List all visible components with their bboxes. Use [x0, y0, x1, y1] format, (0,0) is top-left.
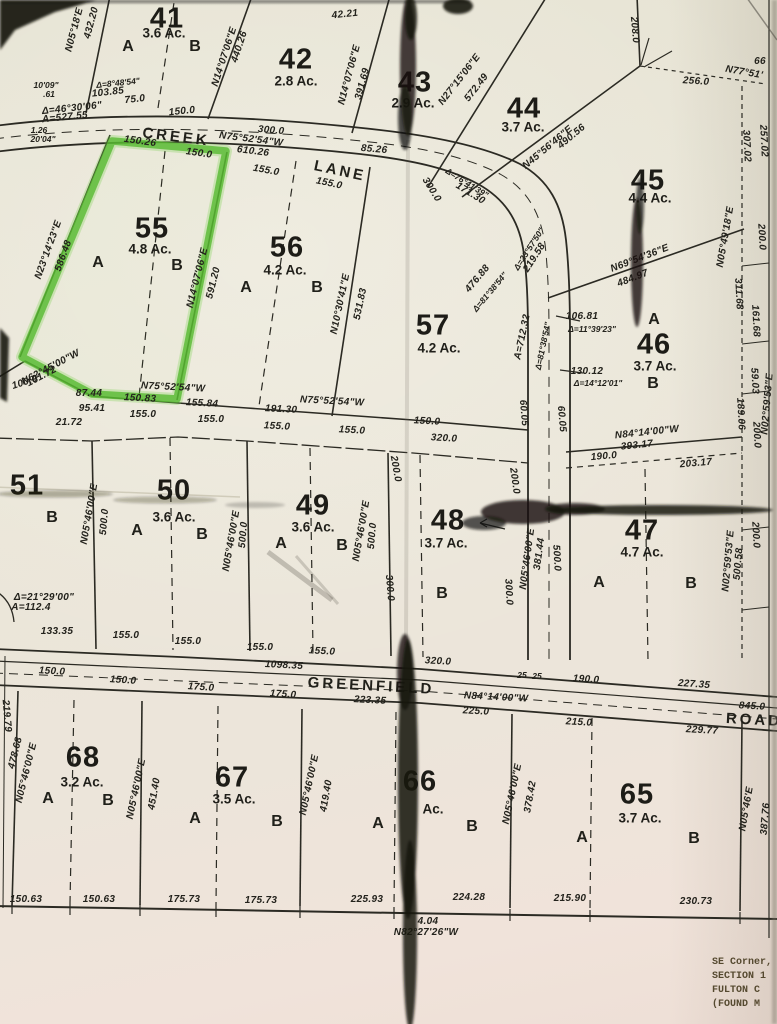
survey-dimension: 200.0: [750, 421, 761, 448]
lot-acreage: 3.6 Ac.: [291, 520, 334, 534]
survey-dimension: 87.44: [76, 389, 103, 399]
survey-dimension: 130.12: [571, 367, 603, 377]
sublot-letter: A: [42, 791, 54, 807]
survey-dimension: 591.20: [205, 266, 223, 300]
lot-acreage: 4.2 Ac.: [417, 341, 460, 355]
lot-acreage: 4.4 Ac.: [628, 191, 671, 205]
survey-dimension: A=712.32: [513, 313, 532, 360]
survey-dimension: 225.93: [351, 895, 383, 905]
survey-dimension: Δ=81°38'54": [534, 321, 552, 370]
survey-dimension: 320.0: [430, 433, 457, 444]
sublot-letter: B: [271, 814, 283, 830]
survey-dimension: 20'04": [31, 135, 56, 144]
survey-dimension: 419.40: [319, 779, 334, 813]
survey-dimension: 155.0: [175, 637, 202, 647]
lot-acreage: 3.7 Ac.: [501, 120, 544, 134]
survey-dimension: 190.0: [572, 674, 599, 686]
survey-dimension: 490.56: [556, 123, 587, 151]
survey-dimension: 66: [754, 57, 766, 67]
lot-number-66: 66: [403, 768, 437, 797]
survey-dimension: Δ=14°12'01": [574, 379, 623, 388]
sublot-letter: A: [593, 575, 605, 591]
survey-dimension: 155.0: [338, 425, 365, 436]
survey-dimension: N14°07'06"E: [186, 247, 211, 309]
sublot-letter: A: [131, 523, 143, 539]
lot-acreage: 4.7 Ac.: [620, 545, 663, 559]
sublot-letter: A: [576, 830, 588, 846]
map-labels-layer: N05°18'E432.20413.6 Ac.ABN14°07'06"E440.…: [0, 0, 777, 1024]
survey-dimension: 175.0: [187, 682, 214, 694]
survey-dimension: 155.0: [130, 410, 157, 420]
lot-number-65: 65: [620, 781, 654, 810]
lot-number-48: 48: [431, 507, 465, 536]
survey-dimension: 175.73: [245, 896, 277, 906]
survey-dimension: N05°46'00"E: [502, 763, 525, 825]
survey-dimension: A=112.4: [11, 603, 50, 613]
sublot-letter: B: [685, 576, 697, 592]
survey-dimension: 190.0: [590, 451, 617, 463]
lot-number-49: 49: [296, 492, 330, 521]
plat-map-photo: N05°18'E432.20413.6 Ac.ABN14°07'06"E440.…: [0, 0, 777, 1024]
survey-dimension: 500.0: [99, 508, 111, 535]
lot-acreage: 3.2 Ac.: [60, 775, 103, 789]
survey-dimension: N02°59'53"E: [760, 373, 775, 435]
road-name-greenfield: GREENFIELD: [307, 675, 434, 697]
lot-acreage: 3.5 Ac.: [212, 792, 255, 806]
lot-number-46: 46: [637, 331, 671, 360]
survey-dimension: 387.76: [760, 802, 773, 835]
lot-number-50: 50: [157, 477, 191, 506]
survey-dimension: N05°46'00"E: [126, 758, 149, 820]
sublot-letter: B: [196, 527, 208, 543]
corner-note-line: SECTION 1: [712, 972, 766, 982]
survey-dimension: 200.0: [388, 455, 402, 483]
survey-dimension: N75°52'54"W: [300, 395, 365, 408]
lot-number-42: 42: [279, 46, 313, 75]
sublot-letter: B: [688, 831, 700, 847]
survey-dimension: 500.0: [550, 544, 561, 571]
survey-dimension: 230.73: [680, 897, 712, 907]
lot-acreage: 2.9 Ac.: [391, 96, 434, 110]
survey-dimension: 531.83: [353, 287, 370, 321]
survey-dimension: 21.72: [56, 418, 83, 428]
survey-dimension: 225.0: [462, 706, 489, 717]
survey-dimension: 229.77: [686, 725, 719, 737]
survey-dimension: 106.81: [566, 312, 598, 322]
sublot-letter: A: [275, 536, 287, 552]
lot-number-56: 56: [270, 234, 304, 263]
survey-dimension: 256.0: [682, 76, 709, 88]
survey-dimension: 155.0: [198, 415, 225, 425]
survey-dimension: 300.0: [502, 578, 513, 605]
survey-dimension: 215.90: [554, 894, 586, 904]
survey-dimension: 175.73: [168, 895, 200, 905]
survey-dimension: 161.68: [749, 305, 761, 338]
survey-dimension: N82°27'26"W: [394, 928, 458, 938]
sublot-letter: A: [92, 255, 104, 271]
survey-dimension: 150.63: [10, 895, 42, 905]
survey-dimension: 610.26: [236, 145, 269, 159]
survey-dimension: 150.0: [413, 416, 440, 427]
survey-dimension: 25: [517, 671, 526, 680]
survey-dimension: 60.05: [517, 399, 529, 426]
survey-dimension: 150.0: [109, 675, 136, 687]
survey-dimension: 432.20: [83, 6, 101, 40]
lot-number-51: 51: [10, 472, 44, 501]
sublot-letter: B: [647, 376, 659, 392]
survey-dimension: 320.0: [424, 656, 451, 667]
survey-dimension: 307.02: [740, 130, 752, 163]
survey-dimension: .61: [43, 90, 55, 99]
sublot-letter: A: [189, 811, 201, 827]
survey-dimension: 150.0: [168, 106, 195, 119]
sublot-letter: A: [372, 816, 384, 832]
sublot-letter: A: [122, 39, 134, 55]
survey-dimension: 150.0: [38, 666, 65, 677]
lot-acreage: 4.8 Ac.: [128, 242, 171, 256]
survey-dimension: N05°18'E: [64, 7, 85, 53]
lot-acreage: 3.7 Ac.: [618, 811, 661, 825]
survey-dimension: 215.0: [565, 717, 592, 728]
corner-note-line: SE Corner,: [712, 958, 772, 968]
lot-number-67: 67: [215, 764, 249, 793]
survey-dimension: 484.97: [616, 269, 650, 290]
survey-dimension: 200.0: [749, 521, 760, 548]
survey-dimension: N84°14'00"W: [464, 691, 529, 704]
survey-dimension: 85.26: [360, 144, 387, 156]
survey-dimension: 25: [532, 672, 541, 681]
sublot-letter: B: [336, 538, 348, 554]
survey-dimension: 155.84: [186, 398, 219, 410]
survey-dimension: Δ=11°39'23": [568, 325, 616, 334]
sublot-letter: A: [648, 312, 660, 328]
survey-dimension: 191.30: [265, 404, 298, 416]
lot-acreage: 4.2 Ac.: [263, 263, 306, 277]
lot-acreage: 3.7 Ac.: [633, 359, 676, 373]
survey-dimension: N10°30'41"E: [330, 273, 353, 335]
survey-dimension: A=527.55: [42, 111, 89, 126]
sublot-letter: B: [436, 586, 448, 602]
survey-dimension: 42.21: [331, 9, 358, 22]
survey-dimension: 208.0: [628, 16, 640, 43]
sublot-letter: B: [102, 793, 114, 809]
survey-dimension: N05°46'E: [738, 786, 756, 832]
survey-dimension: 200.0: [507, 467, 521, 495]
lot-number-68: 68: [66, 744, 100, 773]
survey-dimension: N05°49'18"E: [716, 206, 737, 268]
survey-dimension: 95.41: [79, 404, 106, 414]
sublot-letter: B: [189, 39, 201, 55]
survey-dimension: 60.05: [555, 405, 567, 432]
survey-dimension: 1098.35: [265, 660, 304, 672]
survey-dimension: 59.03: [748, 367, 759, 394]
survey-dimension: 4.04: [418, 917, 439, 927]
survey-dimension: 155.0: [263, 421, 290, 432]
survey-dimension: 223.35: [354, 695, 387, 707]
sublot-letter: B: [311, 280, 323, 296]
survey-dimension: 300.0: [383, 574, 395, 601]
survey-dimension: N05°46'00"E: [80, 483, 101, 545]
sublot-letter: A: [240, 280, 252, 296]
survey-dimension: 257.02: [757, 125, 769, 158]
survey-dimension: 150.0: [185, 147, 213, 161]
lot-number-43: 43: [398, 69, 432, 98]
survey-dimension: 203.17: [679, 458, 712, 471]
survey-dimension: 381.44: [533, 537, 547, 570]
road-name-road: ROAD: [726, 711, 777, 729]
survey-dimension: 155.0: [308, 646, 335, 657]
sublot-letter: B: [171, 258, 183, 274]
lot-acreage: 2.8 Ac.: [274, 74, 317, 88]
corner-note-line: FULTON C: [712, 986, 760, 996]
corner-note-line: (FOUND M: [712, 1000, 760, 1010]
survey-dimension: 500.58: [733, 547, 746, 580]
survey-dimension: 224.28: [453, 893, 485, 903]
survey-dimension: 103.85: [91, 86, 124, 99]
lot-number-57: 57: [416, 312, 450, 341]
survey-dimension: N77°51': [724, 65, 763, 81]
survey-dimension: 75.0: [124, 94, 146, 106]
survey-dimension: 155.0: [252, 164, 280, 178]
survey-dimension: 393.17: [620, 439, 653, 452]
survey-dimension: 586.48: [54, 239, 74, 273]
lot-number-55: 55: [135, 215, 169, 244]
survey-dimension: 300.0: [420, 176, 443, 204]
survey-dimension: 100.0: [11, 374, 39, 392]
survey-dimension: 227.35: [677, 679, 710, 691]
survey-dimension: 155.0: [113, 631, 140, 641]
survey-dimension: 451.40: [147, 777, 162, 811]
survey-dimension: 155.0: [247, 643, 274, 653]
survey-dimension: 311.68: [732, 278, 744, 310]
survey-dimension: 133.35: [41, 627, 73, 637]
survey-dimension: 500.0: [238, 521, 250, 548]
lot-acreage: 3.6 Ac.: [142, 26, 185, 40]
survey-dimension: 200.0: [755, 223, 766, 250]
survey-dimension: 189.06: [734, 398, 746, 431]
survey-dimension: 500.0: [367, 522, 379, 549]
survey-dimension: 150.63: [83, 895, 115, 905]
survey-dimension: 175.0: [269, 689, 296, 701]
survey-dimension: 150.83: [124, 393, 157, 405]
survey-dimension: 219.79: [0, 699, 12, 732]
lot-acreage: 3.7 Ac.: [424, 536, 467, 550]
lot-number-47: 47: [625, 517, 659, 546]
sublot-letter: B: [466, 819, 478, 835]
survey-dimension: 391.69: [354, 67, 372, 101]
lot-acreage: 3.6 Ac.: [152, 510, 195, 524]
survey-dimension: 378.42: [523, 780, 538, 814]
survey-dimension: 150.26: [123, 135, 156, 149]
lot-acreage: Ac.: [422, 802, 443, 816]
sublot-letter: B: [46, 510, 58, 526]
